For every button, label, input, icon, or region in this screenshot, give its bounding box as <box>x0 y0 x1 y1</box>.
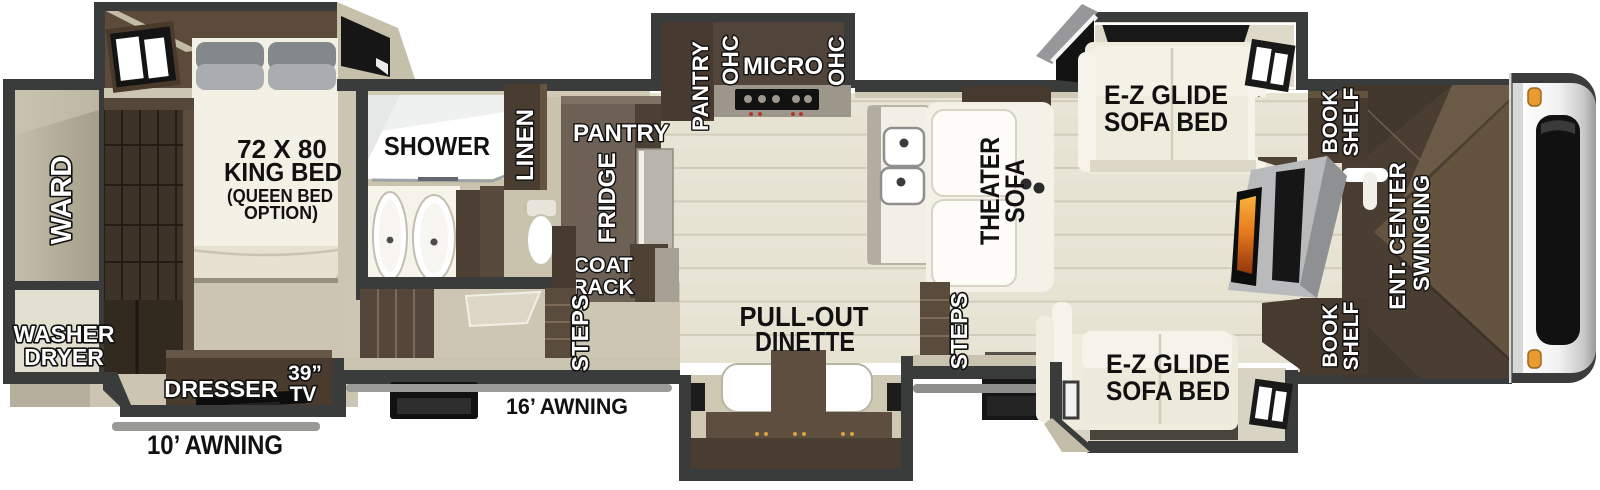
svg-text:E-Z GLIDE: E-Z GLIDE <box>1104 80 1228 110</box>
svg-text:DRYER: DRYER <box>24 344 104 370</box>
svg-text:FRIDGE: FRIDGE <box>594 153 621 244</box>
svg-text:KING BED: KING BED <box>224 157 342 187</box>
svg-text:BOOK: BOOK <box>1319 91 1342 154</box>
svg-text:STEPS: STEPS <box>567 294 593 371</box>
svg-text:10’ AWNING: 10’ AWNING <box>147 430 283 460</box>
svg-text:MICRO: MICRO <box>743 53 823 80</box>
svg-text:DRESSER: DRESSER <box>164 376 278 402</box>
svg-text:DINETTE: DINETTE <box>755 326 855 357</box>
svg-text:SHOWER: SHOWER <box>384 131 490 161</box>
svg-text:SOFA BED: SOFA BED <box>1104 107 1228 137</box>
svg-text:16’ AWNING: 16’ AWNING <box>506 394 628 419</box>
svg-text:39”: 39” <box>288 362 322 385</box>
svg-text:SOFA BED: SOFA BED <box>1106 376 1230 406</box>
svg-text:PANTRY: PANTRY <box>688 41 713 131</box>
svg-text:SHELF: SHELF <box>1340 87 1363 156</box>
svg-text:PANTRY: PANTRY <box>573 120 669 147</box>
svg-text:OHC: OHC <box>718 35 743 85</box>
svg-text:SHELF: SHELF <box>1340 301 1363 370</box>
svg-text:TV: TV <box>290 383 317 406</box>
svg-text:E-Z GLIDE: E-Z GLIDE <box>1106 349 1230 379</box>
svg-text:STEPS: STEPS <box>946 292 972 369</box>
svg-text:OPTION): OPTION) <box>244 202 318 223</box>
svg-text:WARD: WARD <box>46 156 78 245</box>
svg-text:SWINGING: SWINGING <box>1409 175 1434 291</box>
svg-text:LINEN: LINEN <box>512 109 539 181</box>
svg-text:SOFA: SOFA <box>1000 159 1030 223</box>
svg-text:ENT. CENTER: ENT. CENTER <box>1385 162 1410 310</box>
svg-text:BOOK: BOOK <box>1319 305 1342 368</box>
svg-text:COAT: COAT <box>573 253 632 277</box>
svg-text:OHC: OHC <box>824 36 849 86</box>
